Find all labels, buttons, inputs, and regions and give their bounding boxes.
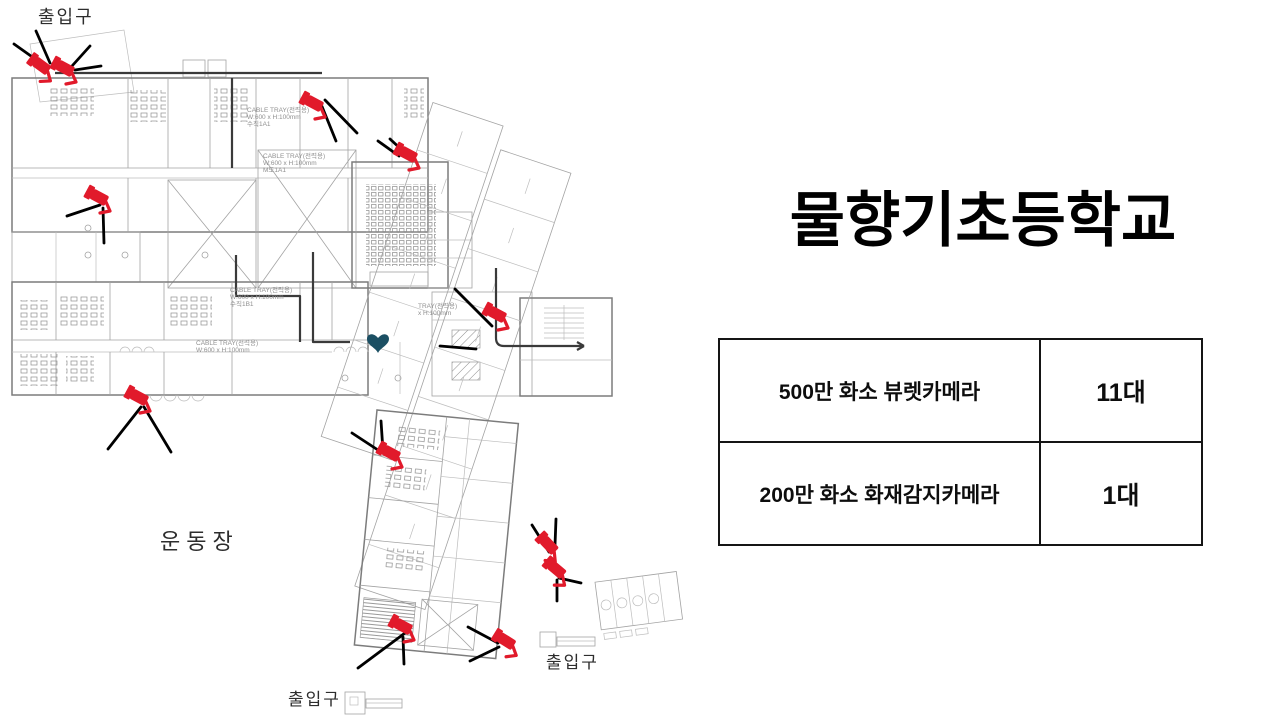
cable-tray-annotation: CABLE TRAY(전력용)W:600 x H:100mm [196,338,258,354]
gate-bottom-right [540,632,595,647]
gate-bottom-left [345,692,402,714]
cctv-camera-marker [538,554,570,588]
camera-count-cell: 11대 [1040,339,1202,442]
camera-summary-table: 500만 화소 뷰렛카메라 11대 200만 화소 화재감지카메라 1대 [718,338,1203,546]
camera-pointer-line [67,205,100,216]
title-line-1: 물향기초등학교 [710,186,1256,257]
floor-plan: CABLE TRAY(전력용)W:600 x H:100mm수직1A1CABLE… [0,0,700,720]
info-panel: 물향기초등학교 CCTV 배치도 500만 화소 뷰렛카메라 11대 200만 … [700,0,1280,720]
cctv-camera-marker [298,90,325,119]
camera-pointer-line [555,519,556,545]
table-row: 500만 화소 뷰렛카메라 11대 [719,339,1202,442]
camera-pointer-line [144,407,171,452]
cctv-camera-marker [529,528,563,563]
camera-type-cell: 500만 화소 뷰렛카메라 [719,339,1040,442]
entrance-label-bottom-right: 출입구 [546,653,599,672]
camera-pointer-line [72,46,90,66]
cable-tray-annotation: CABLE TRAY(전력용)W:600 x H:100mmM도1A1 [263,151,325,174]
camera-pointer-line [75,66,101,70]
cctv-camera-marker [49,55,76,84]
building-linework [12,30,684,714]
floor-plan-drawing: CABLE TRAY(전력용)W:600 x H:100mm수직1A1CABLE… [0,0,700,720]
cable-tray-annotation: TRAY(전력용)x H:100mm [418,301,457,317]
cctv-layout-slide: CABLE TRAY(전력용)W:600 x H:100mm수직1A1CABLE… [0,0,1280,720]
cctv-camera-marker [481,301,508,330]
camera-count-cell: 1대 [1040,442,1202,545]
entrance-label-top: 출입구 [38,7,94,27]
table-row: 200만 화소 화재감지카메라 1대 [719,442,1202,545]
camera-pointer-line [352,433,381,452]
camera-type-cell: 200만 화소 화재감지카메라 [719,442,1040,545]
entrance-label-bottom-left: 출입구 [288,690,341,709]
camera-pointer-line [108,407,141,449]
cable-tray-annotation: CABLE TRAY(전력용)W:600 x H:100mm수직1B1 [230,285,292,308]
playground-label: 운동장 [160,529,239,554]
cctv-camera-marker [489,627,518,657]
